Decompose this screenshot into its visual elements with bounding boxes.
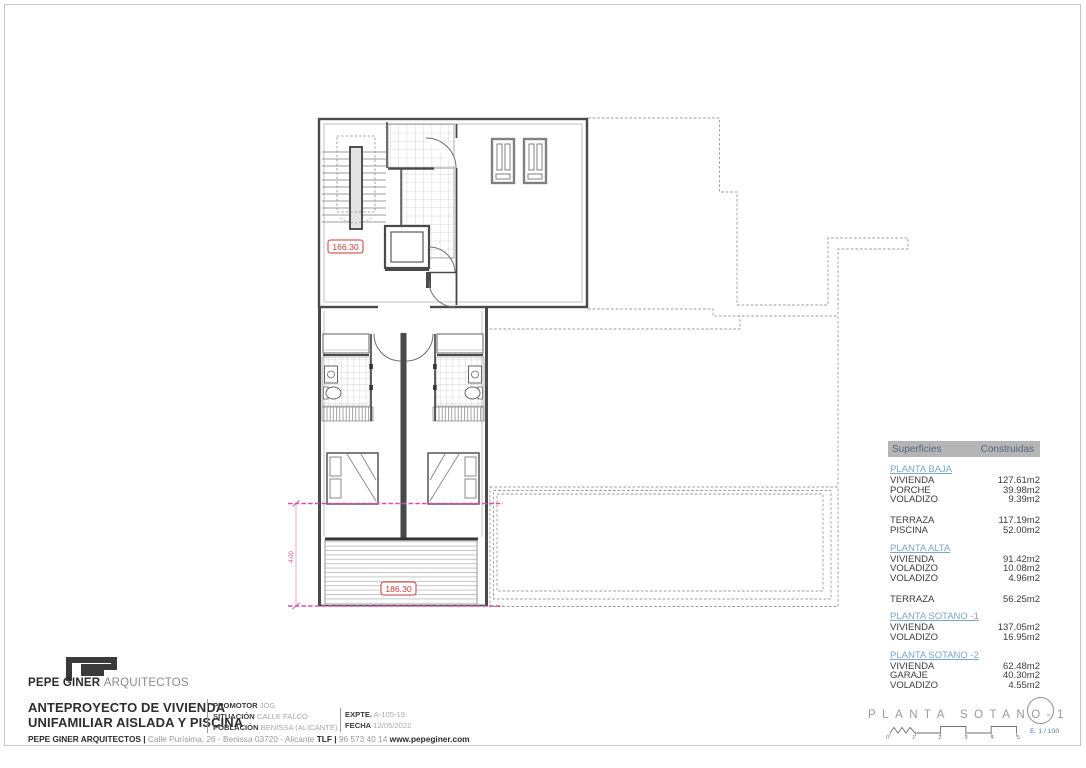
bed	[327, 453, 378, 504]
contact-web: www.pepeginer.com	[390, 734, 470, 744]
row-label: VOLADIZO	[890, 681, 938, 691]
row-value: 16.95m2	[1003, 633, 1040, 643]
contact-phone: 96 573 40 14	[339, 734, 387, 744]
scale-number: 1	[912, 735, 915, 741]
row-value: 9.39m2	[1008, 495, 1040, 505]
expedient-fields: EXPTE. A-105-19FECHA 12/05/2022	[345, 709, 411, 731]
spine-wall	[401, 333, 407, 538]
row-value: 4.96m2	[1008, 574, 1040, 584]
field-row: PROMOTOR JOG	[213, 700, 337, 711]
section-gap	[888, 584, 1040, 595]
project-title-line2: UNIFAMILIAR AISLADA Y PISCINA	[28, 716, 243, 731]
field-value: 12/05/2022	[371, 721, 411, 730]
shower	[433, 407, 484, 421]
table-row: TERRAZA56.25m2	[888, 595, 1040, 605]
titleblock-divider	[340, 708, 341, 732]
scale-number: 2	[938, 735, 941, 741]
table-row: VOLADIZO4.96m2	[888, 574, 1040, 584]
row-label: VOLADIZO	[890, 574, 938, 584]
field-label: FECHA	[345, 720, 371, 731]
level-value: 186.30	[385, 584, 412, 594]
table-row: VOLADIZO16.95m2	[888, 633, 1040, 643]
surfaces-table: Superficies Construidas PLANTA BAJAVIVIE…	[888, 441, 1040, 691]
contact-address: Calle Purísima, 26 - Benissa 03720 - Ali…	[148, 734, 315, 744]
level-value: 166.30	[332, 242, 359, 252]
sink	[325, 366, 338, 383]
field-value: BENISSA (ALICANTE)	[259, 723, 338, 732]
surface-section-title: PLANTA SOTANO -1	[888, 611, 1040, 622]
firm-name-bold: PEPE GINER	[28, 677, 100, 689]
scale-number: 5	[1017, 735, 1020, 741]
row-label: TERRAZA	[890, 595, 934, 605]
field-row: POBLACIÓN BENISSA (ALICANTE)	[213, 722, 337, 733]
terrace-deck	[318, 539, 488, 606]
shower	[322, 407, 373, 421]
scale-numbers: 012345	[886, 735, 1020, 741]
rooflight	[492, 139, 514, 183]
field-label: POBLACIÓN	[213, 722, 259, 733]
titleblock-divider	[207, 699, 208, 733]
contact-firm: PEPE GINER ARQUITECTOS |	[28, 734, 146, 744]
stamp-circle	[1027, 697, 1054, 724]
row-label: PISCINA	[890, 526, 928, 536]
suite-right	[428, 334, 484, 504]
surface-section-title: PLANTA BAJA	[888, 464, 1040, 475]
field-row: EXPTE. A-105-19	[345, 709, 411, 720]
toilet	[326, 387, 341, 399]
row-value: 56.25m2	[1003, 595, 1040, 605]
row-label: VOLADIZO	[890, 633, 938, 643]
scale-number: 4	[991, 735, 994, 741]
surface-section-title: PLANTA ALTA	[888, 543, 1040, 554]
field-value: JOG	[258, 701, 276, 710]
table-row: PISCINA52.00m2	[888, 526, 1040, 536]
col-construidas: Construidas	[981, 444, 1034, 455]
firm-name: PEPE GINER ARQUITECTOS	[28, 677, 189, 689]
contact-line: PEPE GINER ARQUITECTOS | Calle Purísima,…	[28, 734, 470, 744]
wall-stub	[426, 272, 431, 288]
toilet	[465, 387, 480, 399]
field-row: SITUACIÓN CALLE FALCÓ	[213, 711, 337, 722]
field-value: A-105-19	[372, 710, 405, 719]
row-value: 52.00m2	[1003, 526, 1040, 536]
contact-tlf: TLF |	[317, 734, 337, 744]
project-fields: PROMOTOR JOGSITUACIÓN CALLE FALCÓPOBLACI…	[213, 700, 337, 733]
suite-left	[322, 334, 378, 504]
surfaces-table-header: Superficies Construidas	[888, 441, 1040, 457]
level-label-upper: 166.30	[328, 240, 363, 253]
bed	[428, 453, 479, 504]
firm-name-light: ARQUITECTOS	[104, 677, 189, 689]
drawing-sheet: 4.00 166.30 186.30 Superficies Construid…	[0, 0, 1086, 768]
field-label: SITUACIÓN	[213, 711, 255, 722]
scale-ratio-label: E: 1 / 100	[1030, 728, 1059, 735]
field-label: PROMOTOR	[213, 700, 258, 711]
scale-number: 0	[886, 735, 889, 741]
field-value: CALLE FALCÓ	[255, 712, 308, 721]
row-value: 4.55m2	[1008, 681, 1040, 691]
rooflight	[524, 139, 546, 183]
field-row: FECHA 12/05/2022	[345, 720, 411, 731]
project-title-line1: ANTEPROYECTO DE VIVIENDA	[28, 701, 243, 716]
surface-section-title: PLANTA SOTANO -2	[888, 650, 1040, 661]
dimension-label: 4.00	[289, 551, 295, 563]
field-label: EXPTE.	[345, 709, 372, 720]
project-title: ANTEPROYECTO DE VIVIENDA UNIFAMILIAR AIS…	[28, 701, 243, 730]
level-label-lower: 186.30	[381, 582, 416, 595]
table-row: VOLADIZO9.39m2	[888, 495, 1040, 505]
sink	[469, 366, 482, 383]
col-superficies: Superficies	[892, 444, 941, 455]
surface-table-sections: PLANTA BAJAVIVIENDA127.61m2PORCHE39.98m2…	[888, 464, 1040, 691]
row-label: VOLADIZO	[890, 495, 938, 505]
table-row: VOLADIZO4.55m2	[888, 681, 1040, 691]
scale-number: 3	[965, 735, 968, 741]
